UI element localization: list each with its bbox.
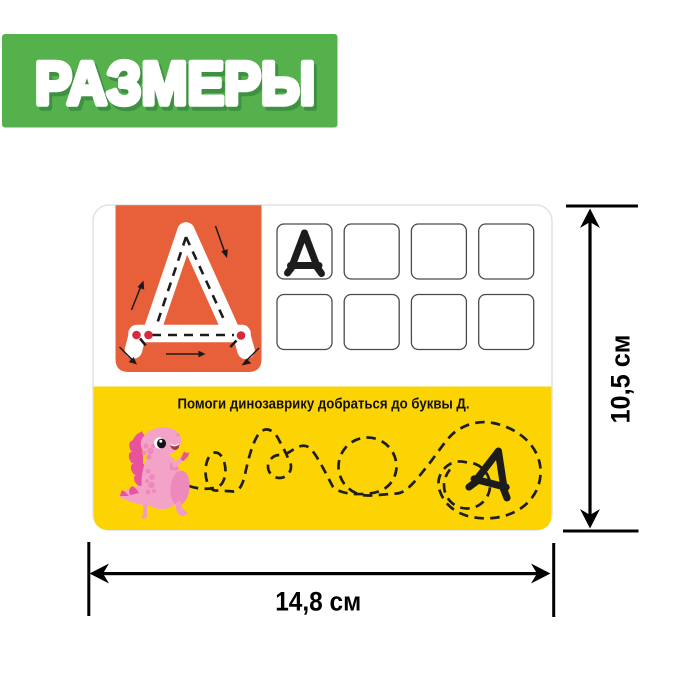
svg-text:РАЗМЕРЫ: РАЗМЕРЫ: [35, 50, 315, 117]
svg-text:Помоги динозаврику добраться д: Помоги динозаврику добраться до буквы Д.: [178, 397, 470, 413]
svg-text:14,8 см: 14,8 см: [275, 587, 361, 617]
svg-text:10,5 см: 10,5 см: [606, 335, 636, 424]
